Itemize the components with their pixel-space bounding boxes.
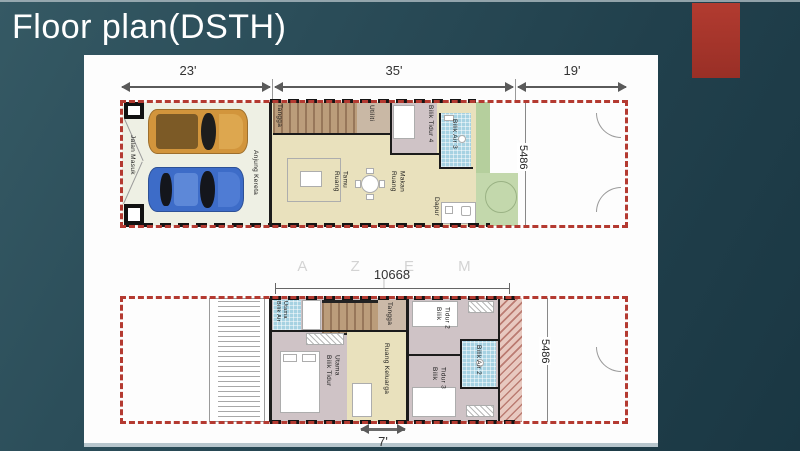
gf-dim-arrow-35ft: [275, 86, 513, 88]
slide-top-edge-line: [0, 0, 800, 2]
gf-dim-arrow-19ft: [518, 86, 626, 88]
ff-dim-line-10668: [275, 288, 510, 289]
gf-dim-19ft: 19': [532, 63, 612, 78]
accent-red-bar: [692, 3, 740, 78]
gf-dim-tick: [272, 79, 273, 101]
gf-dim-35ft: 35': [354, 63, 434, 78]
gf-dim-tick: [515, 79, 516, 101]
ground-floor-plan: 23' 35' 19': [84, 55, 658, 255]
ff-dim-7ft: 7': [343, 434, 423, 449]
slide-title: Floor plan(DSTH): [12, 8, 286, 47]
ff-lot-boundary: [120, 296, 628, 424]
gf-dim-arrow-23ft: [122, 86, 270, 88]
first-floor-plan: A Z E M I 10668: [84, 255, 658, 443]
gf-lot-boundary: [120, 100, 628, 228]
gf-dim-23ft: 23': [148, 63, 228, 78]
slide: Floor plan(DSTH) 23' 35' 19': [0, 0, 800, 451]
ff-dim-arrow-7ft: [361, 428, 405, 431]
content-panel: 23' 35' 19': [84, 55, 658, 447]
ff-dim-10668: 10668: [327, 267, 457, 282]
